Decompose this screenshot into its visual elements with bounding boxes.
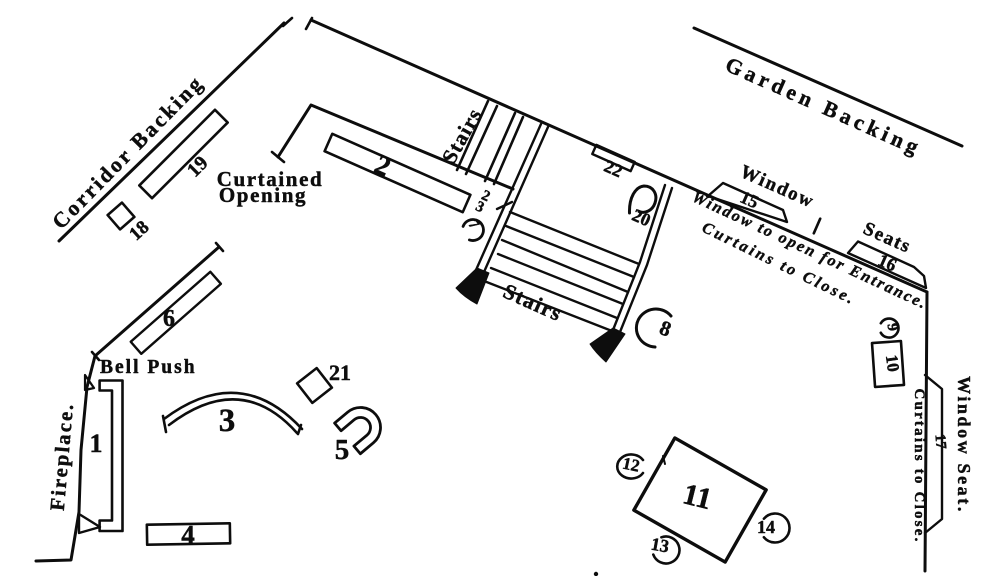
svg-text:Stairs: Stairs — [437, 104, 487, 168]
svg-text:Bell Push: Bell Push — [100, 357, 197, 378]
svg-text:Stairs: Stairs — [500, 279, 567, 326]
svg-text:6: 6 — [163, 306, 175, 332]
svg-text:11: 11 — [680, 477, 716, 516]
svg-text:Garden Backing: Garden Backing — [722, 52, 926, 160]
svg-text:3: 3 — [219, 403, 236, 439]
svg-text:14: 14 — [757, 517, 775, 537]
svg-text:Curtains to Close.: Curtains to Close. — [911, 388, 927, 543]
svg-text:21: 21 — [329, 360, 351, 385]
svg-text:10: 10 — [882, 353, 903, 372]
svg-text:13: 13 — [649, 534, 670, 557]
svg-text:1: 1 — [90, 429, 103, 458]
svg-text:17: 17 — [931, 433, 948, 450]
svg-text:5: 5 — [335, 434, 350, 466]
svg-text:19: 19 — [183, 152, 213, 182]
svg-text:Opening: Opening — [219, 183, 307, 207]
svg-text:7: 7 — [465, 217, 483, 233]
svg-text:Fireplace.: Fireplace. — [47, 401, 78, 511]
svg-text:2: 2 — [370, 149, 395, 183]
svg-text:4: 4 — [181, 520, 195, 550]
svg-text:8: 8 — [656, 315, 674, 341]
svg-text:12: 12 — [621, 454, 642, 476]
svg-text:Window Seat.: Window Seat. — [954, 376, 974, 514]
svg-text:3: 3 — [473, 199, 486, 217]
